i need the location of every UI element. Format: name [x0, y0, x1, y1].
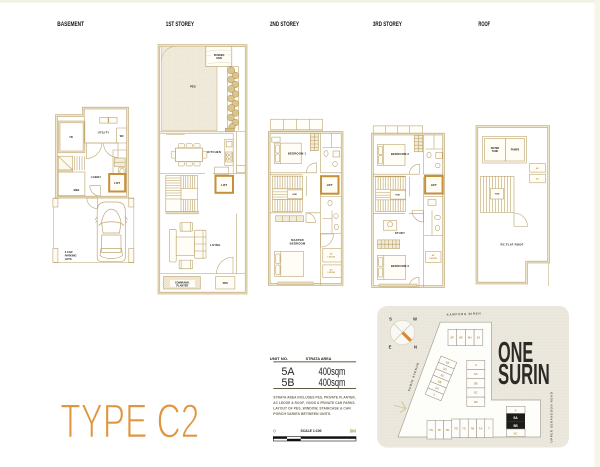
svg-text:LEDGE: LEDGE [429, 258, 437, 260]
svg-text:UPPER SERANGOON ROAD: UPPER SERANGOON ROAD [550, 391, 554, 442]
svg-text:AC LEDGE & ROOF, VOIDS & PRIVA: AC LEDGE & ROOF, VOIDS & PRIVATE CAR PAR… [273, 401, 355, 405]
svg-text:STRATA AREA INCLUDES PES, PRIV: STRATA AREA INCLUDES PES, PRIVATE PLANTE… [273, 396, 356, 400]
svg-text:400sqm: 400sqm [319, 377, 346, 389]
svg-text:PORCH VARIES BETWEEN UNITS.: PORCH VARIES BETWEEN UNITS. [273, 412, 331, 416]
svg-text:9H: 9H [468, 336, 472, 340]
svg-text:9G: 9G [459, 336, 464, 340]
svg-text:7G: 7G [429, 428, 434, 432]
svg-text:LOBBY: LOBBY [91, 175, 101, 179]
svg-text:PLANTER: PLANTER [176, 285, 188, 288]
svg-text:LOTS: LOTS [65, 257, 72, 261]
svg-text:AC: AC [536, 167, 540, 170]
svg-text:STRATA AREA: STRATA AREA [306, 356, 332, 361]
svg-text:STUDY: STUDY [395, 231, 405, 235]
svg-text:AC: AC [330, 268, 334, 271]
svg-text:BEDROOM 2: BEDROOM 2 [391, 152, 410, 156]
svg-text:TANK: TANK [492, 150, 499, 153]
svg-text:BEDROOM: BEDROOM [290, 242, 306, 246]
svg-text:LEDGE: LEDGE [328, 257, 336, 259]
svg-text:0: 0 [273, 428, 276, 433]
svg-text:VOID: VOID [395, 195, 400, 197]
svg-text:7E: 7E [446, 428, 450, 432]
svg-text:PES: PES [190, 85, 196, 89]
svg-text:BEDROOM 3: BEDROOM 3 [391, 264, 410, 268]
svg-text:AC: AC [536, 178, 540, 181]
svg-text:WC: WC [120, 135, 124, 138]
svg-text:2ND STOREY: 2ND STOREY [270, 21, 300, 28]
svg-text:LIFT: LIFT [221, 183, 227, 187]
svg-text:LIFT: LIFT [327, 183, 333, 187]
svg-text:KITCHEN: KITCHEN [207, 150, 221, 154]
svg-text:VOID: VOID [292, 194, 297, 196]
svg-text:PARKING: PARKING [65, 253, 77, 257]
svg-text:AC: AC [432, 254, 436, 257]
svg-text:2 CAR: 2 CAR [65, 250, 73, 254]
svg-text:GDN: GDN [216, 57, 222, 60]
svg-text:UNIT NO.: UNIT NO. [270, 356, 288, 361]
svg-text:5A: 5A [513, 416, 518, 420]
svg-text:BASEMENT: BASEMENT [57, 21, 84, 28]
svg-text:SURIN: SURIN [498, 359, 550, 391]
svg-text:TYPE C2: TYPE C2 [60, 394, 199, 448]
svg-text:N: N [414, 345, 417, 350]
svg-text:7F: 7F [438, 428, 442, 432]
svg-text:BEDROOM 1: BEDROOM 1 [288, 152, 307, 156]
svg-text:1ST STOREY: 1ST STOREY [166, 21, 195, 28]
svg-text:5B: 5B [513, 424, 518, 428]
svg-text:3RD STOREY: 3RD STOREY [373, 21, 403, 28]
svg-text:S: S [389, 317, 392, 322]
svg-text:W: W [413, 317, 417, 322]
svg-text:9J: 9J [477, 336, 481, 340]
svg-text:UTILITY: UTILITY [98, 131, 110, 135]
svg-text:SCALE 1:100: SCALE 1:100 [300, 429, 321, 433]
svg-text:ROOF: ROOF [478, 21, 490, 28]
svg-text:VOID: VOID [495, 194, 500, 196]
svg-text:E: E [389, 345, 392, 350]
svg-text:LIFT: LIFT [114, 181, 120, 185]
svg-text:YD: YD [69, 135, 73, 139]
svg-text:LAYOUT OF PES, WINDOW, STAIRCA: LAYOUT OF PES, WINDOW, STAIRCASE & CAR [273, 407, 351, 411]
svg-text:AC: AC [330, 253, 334, 256]
svg-text:LIVING: LIVING [210, 243, 221, 247]
svg-text:LIFT: LIFT [431, 183, 437, 187]
svg-text:5B: 5B [282, 377, 295, 389]
svg-text:RC FLAT ROOF: RC FLAT ROOF [500, 243, 523, 247]
svg-text:PES: PES [223, 282, 228, 285]
svg-text:M&E: M&E [74, 188, 80, 192]
svg-text:LEDGE: LEDGE [328, 272, 336, 274]
svg-text:9F: 9F [451, 336, 455, 340]
svg-text:5M: 5M [350, 428, 357, 433]
svg-text:PUMPS: PUMPS [511, 148, 520, 151]
